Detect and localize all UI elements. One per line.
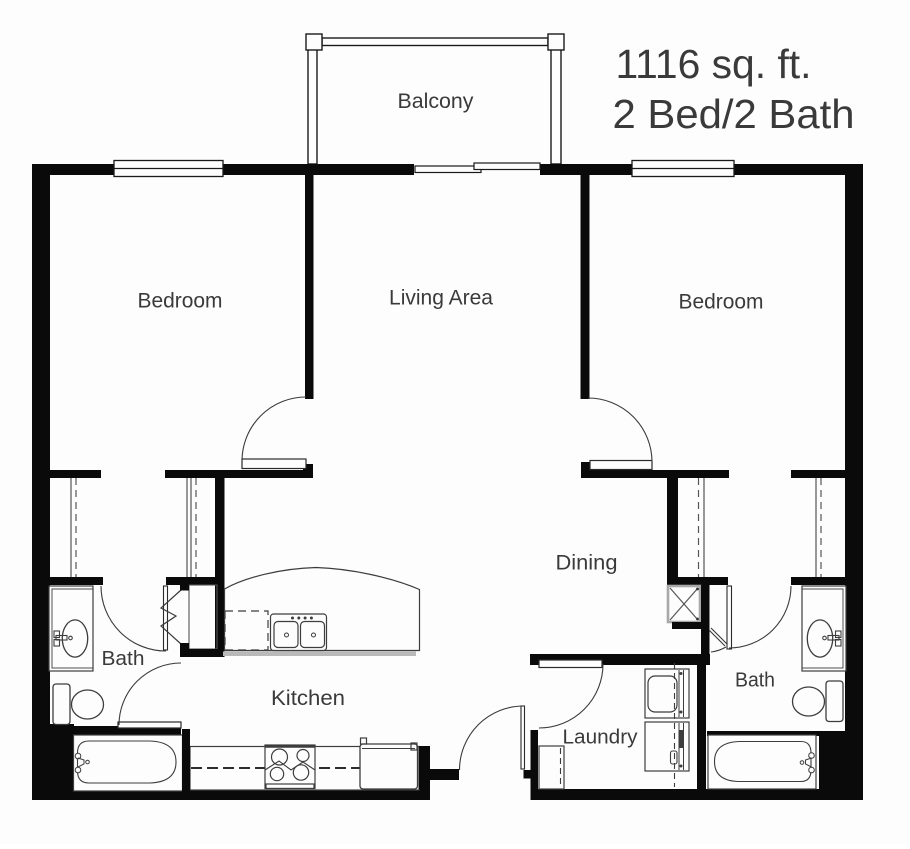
svg-text:Bedroom: Bedroom: [679, 291, 764, 314]
svg-text:1116 sq. ft.: 1116 sq. ft.: [616, 41, 812, 87]
svg-text:Bedroom: Bedroom: [138, 290, 223, 313]
svg-text:Bath: Bath: [102, 648, 145, 670]
svg-text:Bath: Bath: [735, 670, 775, 692]
svg-text:Kitchen: Kitchen: [271, 687, 345, 710]
svg-text:Balcony: Balcony: [398, 90, 474, 113]
svg-text:Laundry: Laundry: [563, 727, 638, 749]
svg-text:2 Bed/2 Bath: 2 Bed/2 Bath: [613, 91, 855, 137]
svg-text:Living Area: Living Area: [389, 287, 493, 310]
svg-text:Dining: Dining: [556, 552, 618, 575]
